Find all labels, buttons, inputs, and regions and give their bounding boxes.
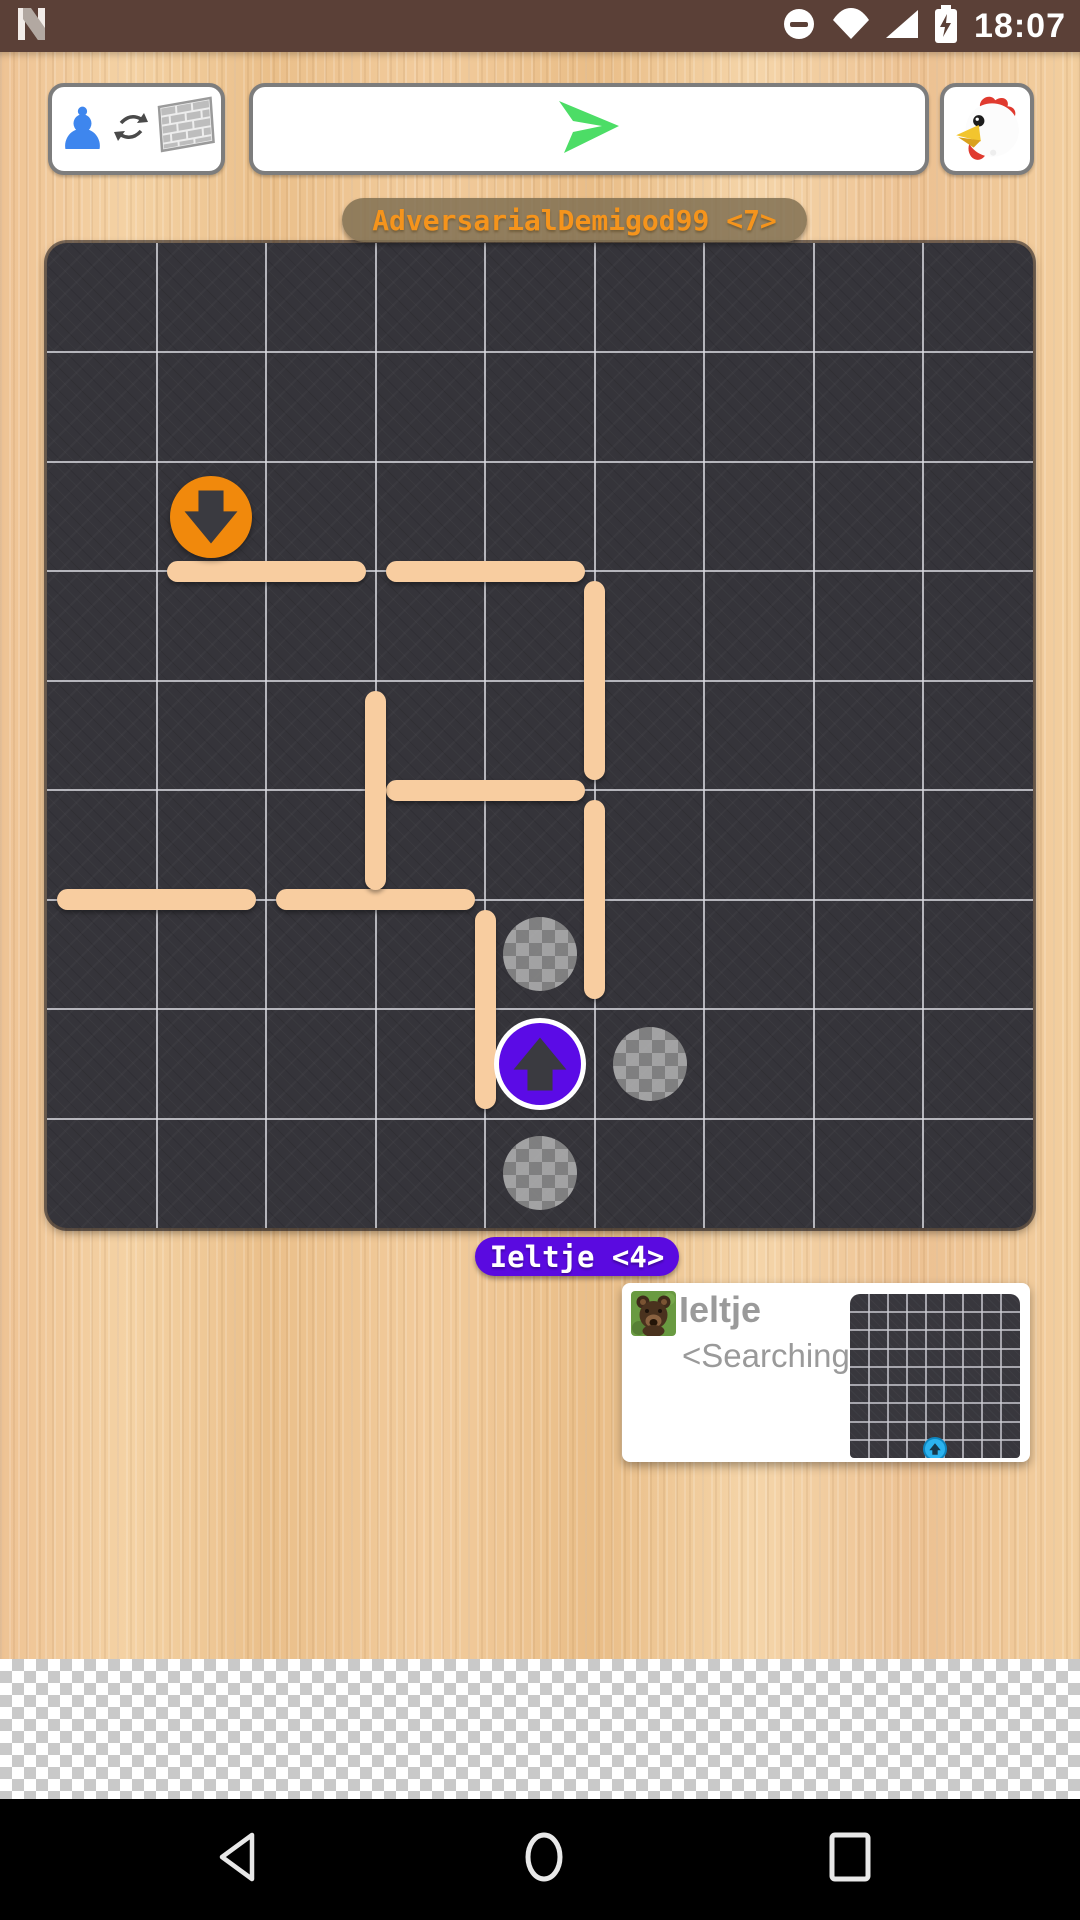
mini-grid-line bbox=[868, 1294, 870, 1458]
move-hint[interactable] bbox=[613, 1027, 687, 1101]
wall-vertical bbox=[365, 691, 386, 890]
up-arrow-icon bbox=[501, 1025, 579, 1103]
transparency-checker-strip bbox=[0, 1659, 1080, 1799]
mini-player-pawn bbox=[923, 1437, 947, 1458]
board-grid-line bbox=[156, 243, 158, 1228]
mini-grid-line bbox=[850, 1348, 1020, 1350]
board-grid-line bbox=[47, 1118, 1033, 1120]
wall-horizontal bbox=[167, 561, 366, 582]
home-icon bbox=[521, 1830, 567, 1889]
home-button[interactable] bbox=[474, 1799, 614, 1920]
board-grid-line bbox=[813, 243, 815, 1228]
wall-horizontal bbox=[57, 889, 256, 910]
clock: 18:07 bbox=[974, 7, 1066, 46]
board-grid-line bbox=[47, 1008, 1033, 1010]
game-board[interactable] bbox=[47, 243, 1033, 1228]
mini-grid-line bbox=[925, 1294, 927, 1458]
wall-vertical bbox=[475, 910, 496, 1109]
opponent-info-card[interactable]: Ieltje <Searching> bbox=[622, 1283, 1030, 1462]
wifi-icon bbox=[832, 8, 870, 45]
mini-grid-line bbox=[962, 1294, 964, 1458]
mini-grid-line bbox=[943, 1294, 945, 1458]
opponent-card-name: Ieltje bbox=[679, 1289, 761, 1331]
mini-grid-line bbox=[887, 1294, 889, 1458]
wall-horizontal bbox=[276, 889, 475, 910]
board-grid-line bbox=[47, 351, 1033, 353]
wall-vertical bbox=[584, 581, 605, 780]
opponent-pawn[interactable] bbox=[170, 476, 252, 558]
mini-grid-line bbox=[850, 1421, 1020, 1423]
recents-icon bbox=[828, 1831, 872, 1888]
piece-type-toggle-button[interactable]: ♟ bbox=[48, 83, 225, 175]
wall-horizontal bbox=[386, 561, 585, 582]
mini-grid-line bbox=[850, 1329, 1020, 1331]
move-hint[interactable] bbox=[503, 1136, 577, 1210]
mini-grid-line bbox=[850, 1402, 1020, 1404]
player-name-label: Ieltje <4> bbox=[475, 1237, 679, 1276]
android-nav-bar bbox=[0, 1799, 1080, 1920]
chess-pawn-icon: ♟ bbox=[57, 100, 109, 158]
wall-horizontal bbox=[386, 780, 585, 801]
down-arrow-icon bbox=[172, 478, 250, 556]
mini-grid-line bbox=[906, 1294, 908, 1458]
player-pawn[interactable] bbox=[499, 1023, 581, 1105]
brick-wall-icon bbox=[153, 95, 217, 164]
recents-button[interactable] bbox=[780, 1799, 920, 1920]
mini-grid-line bbox=[850, 1366, 1020, 1368]
n-logo-icon bbox=[14, 6, 46, 47]
mini-board-preview bbox=[850, 1294, 1020, 1458]
mini-grid-line bbox=[850, 1384, 1020, 1386]
cellular-signal-icon bbox=[886, 10, 918, 43]
back-icon bbox=[215, 1830, 259, 1889]
chicken-button[interactable] bbox=[940, 83, 1034, 175]
back-button[interactable] bbox=[167, 1799, 307, 1920]
up-arrow-icon bbox=[926, 1440, 944, 1458]
opponent-name-label: AdversarialDemigod99 <7> bbox=[342, 198, 807, 242]
board-grid-line bbox=[703, 243, 705, 1228]
board-grid-line bbox=[47, 461, 1033, 463]
send-move-button[interactable] bbox=[249, 83, 929, 175]
do-not-disturb-icon bbox=[782, 7, 816, 46]
chicken-icon bbox=[951, 91, 1023, 168]
battery-charging-icon bbox=[934, 4, 958, 49]
teddy-bear-avatar bbox=[631, 1291, 676, 1336]
move-hint[interactable] bbox=[503, 917, 577, 991]
board-grid-line bbox=[265, 243, 267, 1228]
mini-grid-line bbox=[981, 1294, 983, 1458]
paper-plane-icon bbox=[556, 98, 622, 161]
opponent-card-status: <Searching> bbox=[682, 1337, 869, 1375]
mini-grid-line bbox=[1000, 1294, 1002, 1458]
status-bar: 18:07 bbox=[0, 0, 1080, 52]
board-grid-line bbox=[47, 680, 1033, 682]
swap-arrows-icon bbox=[113, 111, 149, 148]
phone-screen: 18:07 ♟ bbox=[0, 0, 1080, 1920]
wall-vertical bbox=[584, 800, 605, 999]
mini-grid-line bbox=[850, 1311, 1020, 1313]
board-grid-line bbox=[922, 243, 924, 1228]
